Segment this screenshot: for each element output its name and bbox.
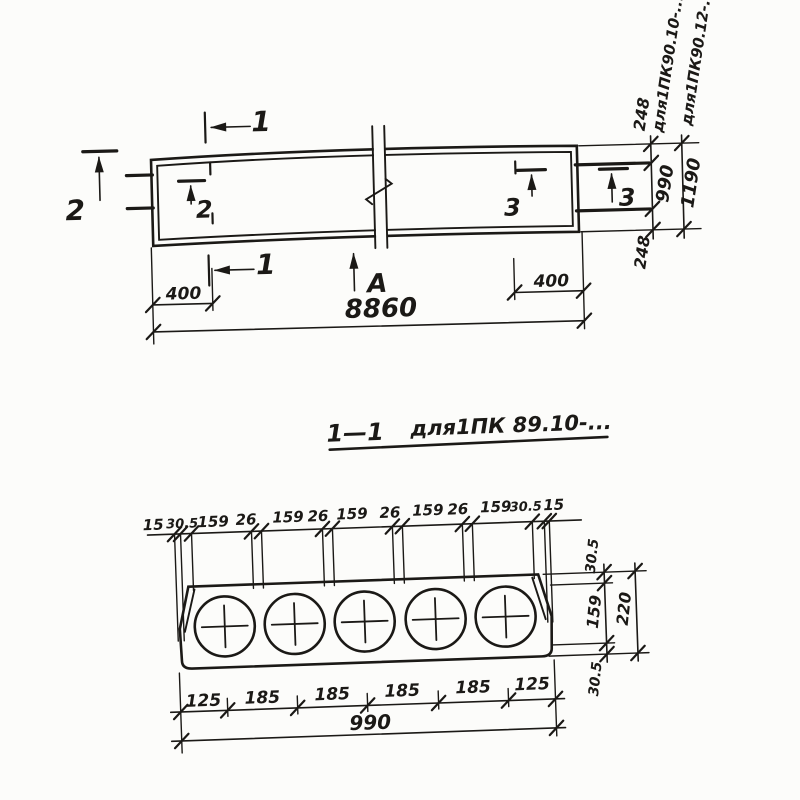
section-mark-2-label: 2 (196, 195, 213, 223)
plan-width-dimensions: 248 990 248 1190 для1ПК90.10-... для1ПК9… (575, 0, 723, 272)
section-mark-3-inner: 3 (503, 161, 547, 222)
arrow-up-icon (527, 174, 536, 190)
top-dim: 15 (543, 496, 564, 515)
arrow-up-icon (607, 173, 616, 189)
drawing-canvas: 1 1 2 2 3 (0, 0, 800, 800)
section-mark-1-label: 1 (251, 105, 271, 138)
dim-8860: 8860 (344, 293, 417, 325)
section-title: 1—1 для1ПК 89.10-... (326, 410, 612, 450)
scanned-engineering-drawing: 1 1 2 2 3 (0, 0, 800, 800)
top-dim: 30.5 (510, 499, 543, 515)
section-title-mark: 1—1 (326, 418, 384, 448)
bottom-dim: 185 (244, 688, 280, 709)
axis-mark-a: А (349, 252, 388, 300)
section-mark-1-label: 1 (256, 248, 276, 281)
top-dim: 159 (336, 504, 368, 523)
section-view: 1—1 для1ПК 89.10-... (139, 409, 652, 754)
hollow-core-2 (264, 593, 326, 655)
section-mark-3-outer: 3 (599, 168, 635, 212)
dim-400-left: 400 (165, 284, 202, 305)
plan-view: 1 1 2 2 3 (60, 0, 724, 346)
dim-248-bottom: 248 (630, 234, 654, 270)
hollow-core-5 (475, 586, 537, 648)
section-title-label: для1ПК 89.10-... (409, 410, 612, 441)
section-mark-2-label: 2 (65, 194, 85, 227)
top-dim: 26 (235, 510, 256, 529)
hollow-core-1 (194, 595, 256, 657)
top-dim: 159 (272, 508, 304, 527)
top-dim: 26 (379, 503, 400, 522)
section-mark-1-top: 1 (205, 105, 272, 143)
bottom-dim: 185 (455, 677, 491, 698)
top-dim: 159 (480, 497, 512, 516)
arrow-up-icon (94, 156, 103, 172)
side-dim-top-cover: 30.5 (583, 538, 603, 574)
bottom-dim: 125 (185, 691, 221, 712)
left-anchor-bars (126, 175, 153, 209)
top-dim: 159 (197, 512, 229, 531)
section-mark-2-outer: 2 (64, 151, 119, 227)
side-dim-core: 159 (583, 594, 605, 629)
bottom-dim: 185 (384, 681, 420, 702)
top-dim: 15 (142, 515, 163, 534)
arrow-left-icon (214, 265, 230, 274)
dim-400-right: 400 (532, 271, 569, 292)
bottom-dim: 125 (514, 674, 550, 695)
section-mark-1-bottom: 1 (208, 248, 276, 286)
bottom-dim: 185 (314, 684, 350, 705)
hollow-core-3 (334, 591, 396, 653)
section-mark-2-inner: 2 (178, 162, 213, 224)
top-dim: 30.5 (166, 516, 199, 532)
top-dim: 26 (447, 500, 468, 519)
section-height-dimensions: 30.5 159 30.5 220 (542, 536, 651, 699)
section-mark-3-label: 3 (504, 193, 521, 221)
top-dim: 159 (412, 501, 444, 520)
top-dim: 26 (307, 507, 328, 526)
hollow-core-4 (405, 588, 467, 650)
section-bottom-dimensions: 125 185 185 185 185 125 990 (169, 660, 566, 754)
side-dim-bottom-cover: 30.5 (586, 661, 606, 697)
section-top-dimensions: 15 30.5 159 26 159 26 159 26 159 26 159 … (142, 495, 585, 642)
dim-990: 990 (652, 163, 678, 203)
slab-section-outline (178, 574, 553, 669)
side-dim-height: 220 (613, 591, 635, 626)
bottom-dim-total: 990 (349, 710, 392, 735)
arrow-up-icon (186, 185, 195, 201)
section-mark-3-label: 3 (618, 183, 635, 211)
arrow-left-icon (210, 123, 226, 132)
arrow-up-icon (349, 253, 358, 269)
